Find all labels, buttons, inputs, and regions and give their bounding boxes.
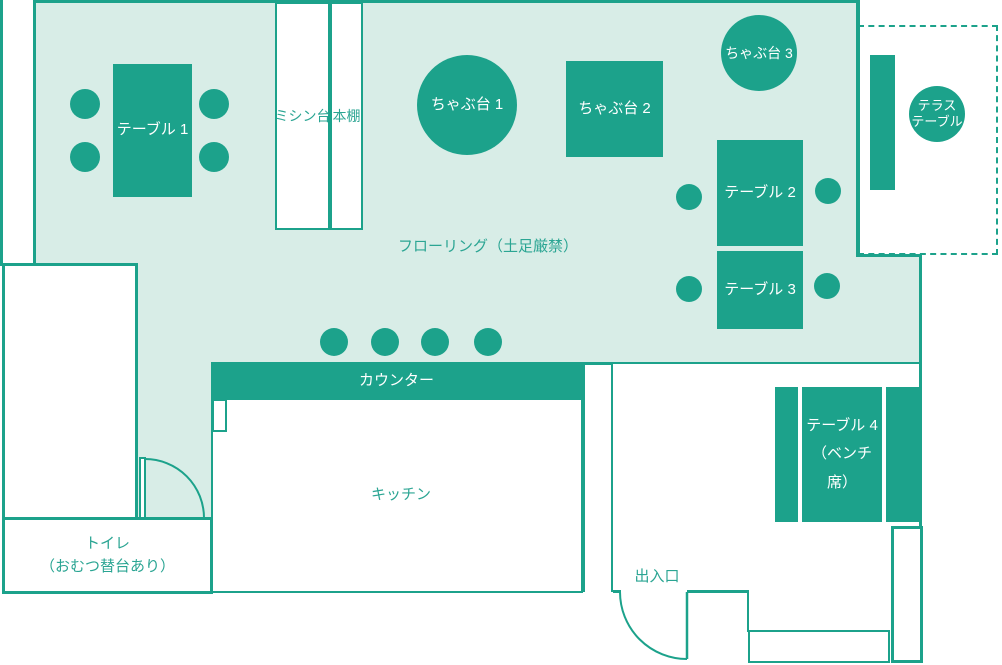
wall-east-mid bbox=[919, 255, 922, 528]
wall-bottom-left-of-door bbox=[613, 590, 621, 593]
chair bbox=[70, 142, 100, 172]
wall-bottom-right-of-door bbox=[687, 590, 749, 593]
floor-plan: トイレ （おむつ替台あり） キッチン ミシン台 本棚 テーブル 1 ちゃぶ台 1… bbox=[0, 0, 1002, 665]
counter-stool bbox=[474, 328, 502, 356]
chabudai-1: ちゃぶ台 1 bbox=[417, 55, 517, 155]
wall-top bbox=[36, 0, 860, 3]
wall-kitchen-east bbox=[583, 363, 613, 592]
sewing-table: ミシン台 bbox=[275, 2, 330, 230]
chair bbox=[199, 142, 229, 172]
toilet-label: トイレ bbox=[85, 533, 130, 556]
table-1: テーブル 1 bbox=[113, 64, 192, 197]
chabudai-3: ちゃぶ台 3 bbox=[721, 15, 797, 91]
table-1-label: テーブル 1 bbox=[117, 120, 189, 140]
chabudai-2: ちゃぶ台 2 bbox=[566, 61, 663, 157]
terrace-table: テラス テーブル bbox=[909, 86, 965, 142]
window-bottom bbox=[748, 630, 890, 663]
table-3: テーブル 3 bbox=[717, 251, 803, 329]
wall-east-upper bbox=[856, 0, 860, 257]
wall-entrance-top bbox=[583, 362, 922, 364]
table-4-bench-left bbox=[775, 387, 798, 522]
chair bbox=[70, 89, 100, 119]
chair bbox=[199, 89, 229, 119]
bookshelf-label: 本棚 bbox=[333, 106, 361, 127]
room-upper-left bbox=[2, 263, 138, 520]
chair bbox=[814, 273, 840, 299]
chabudai-3-label: ちゃぶ台 3 bbox=[725, 44, 793, 63]
flooring-area-right bbox=[856, 255, 920, 363]
counter-stool bbox=[371, 328, 399, 356]
chabudai-2-label: ちゃぶ台 2 bbox=[578, 99, 651, 119]
chair bbox=[676, 184, 702, 210]
counter-stool bbox=[320, 328, 348, 356]
terrace-bench bbox=[870, 55, 895, 190]
table-4: テーブル 4 （ベンチ席） bbox=[802, 387, 882, 522]
table-4-bench-right bbox=[886, 387, 919, 522]
wall-west bbox=[0, 0, 36, 266]
sewing-table-label: ミシン台 bbox=[275, 106, 331, 127]
chabudai-1-label: ちゃぶ台 1 bbox=[431, 95, 504, 115]
table-2-label: テーブル 2 bbox=[724, 183, 796, 203]
entrance-door-arc bbox=[620, 592, 687, 659]
wall-step-down bbox=[747, 590, 749, 632]
counter-label: カウンター bbox=[359, 371, 434, 391]
table-2: テーブル 2 bbox=[717, 140, 803, 246]
entrance-label: 出入口 bbox=[607, 565, 707, 586]
toilet-sublabel: （おむつ替台あり） bbox=[40, 556, 175, 579]
counter-stool bbox=[421, 328, 449, 356]
flooring-label: フローリング（土足厳禁） bbox=[348, 235, 628, 256]
table-4-label: テーブル 4 bbox=[806, 412, 878, 441]
window-right bbox=[891, 526, 923, 663]
bookshelf: 本棚 bbox=[330, 2, 363, 230]
terrace-table-label: テラス bbox=[918, 98, 957, 114]
kitchen-label: キッチン bbox=[301, 483, 501, 504]
terrace-table-sublabel: テーブル bbox=[911, 114, 962, 130]
counter: カウンター bbox=[211, 363, 582, 400]
table-3-label: テーブル 3 bbox=[724, 280, 796, 300]
wall-terrace-bottom bbox=[856, 254, 922, 257]
room-toilet: トイレ （おむつ替台あり） bbox=[2, 517, 213, 594]
table-4-sublabel: （ベンチ席） bbox=[802, 440, 882, 497]
kitchen-sink bbox=[212, 399, 227, 432]
chair bbox=[815, 178, 841, 204]
chair bbox=[676, 276, 702, 302]
